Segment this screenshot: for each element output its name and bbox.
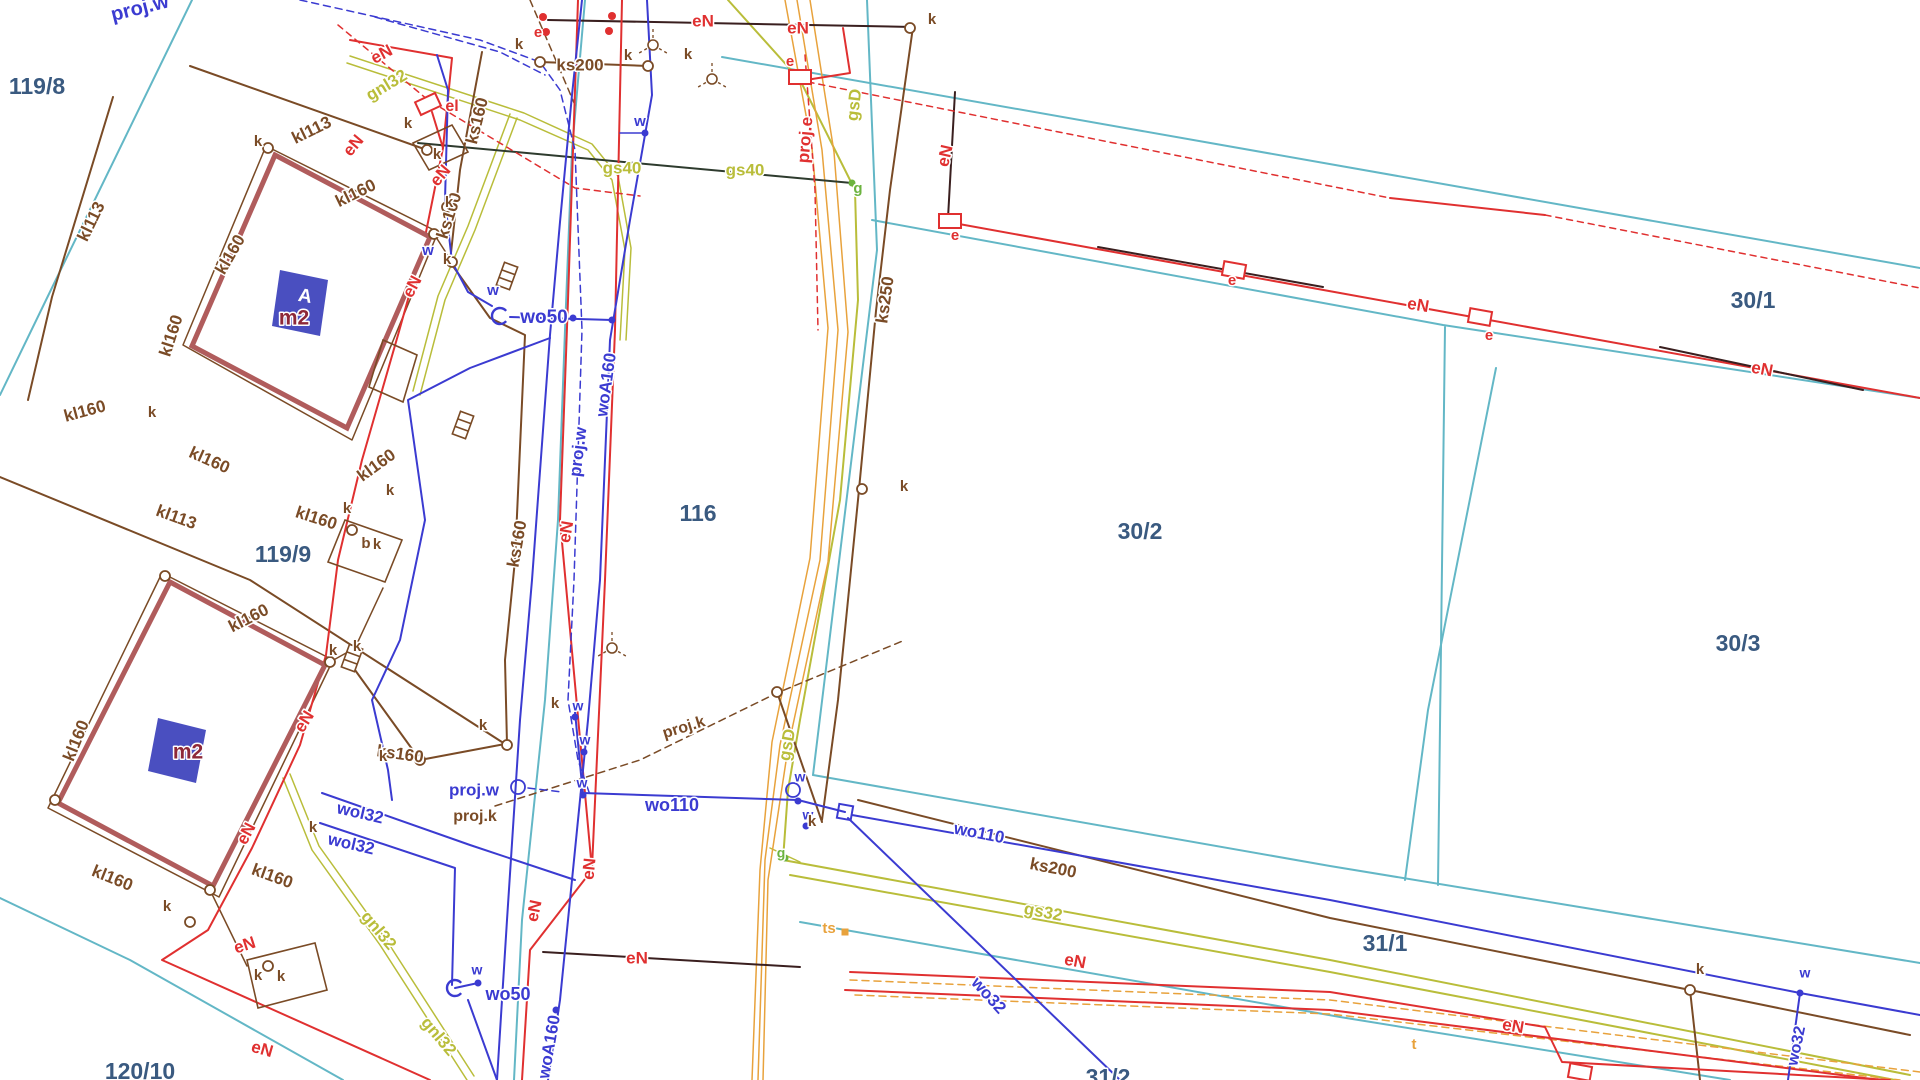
- water-node-icon: [1797, 990, 1804, 997]
- map-label-k: k: [443, 251, 452, 268]
- map-label-g: g: [777, 845, 786, 861]
- map-canvas: 119/8119/9120/1011630/130/230/331/131/2p…: [0, 0, 1920, 1080]
- map-label-k: k: [163, 898, 172, 915]
- map-label-k: k: [254, 967, 263, 984]
- map-label-wol32: wol32: [334, 798, 385, 827]
- map-label-m2: m2: [279, 307, 309, 330]
- map-label-gnl32: gnl32: [363, 66, 411, 105]
- map-label-gnl32: gnl32: [417, 1013, 460, 1059]
- line-power-proj-e-dash2: [1545, 215, 1920, 288]
- map-label-proj-k: proj.k: [661, 713, 708, 742]
- map-label-k: k: [404, 115, 413, 132]
- map-label-en: eN: [1406, 294, 1431, 316]
- map-label-woa160: woA160: [534, 1014, 564, 1080]
- map-label-en: eN: [1501, 1015, 1526, 1037]
- sewer-point-icon: [50, 795, 60, 805]
- culvert-icon: [452, 411, 473, 438]
- water-point-icon: [511, 780, 525, 794]
- map-label-en: eN: [231, 933, 258, 958]
- map-label-proj-w: proj.w: [566, 425, 591, 478]
- map-label-k: k: [808, 813, 817, 830]
- water-node-icon: [642, 130, 649, 137]
- map-label-w: w: [1799, 965, 1811, 981]
- map-label-k: k: [309, 819, 318, 836]
- survey-point-icon: [639, 29, 667, 53]
- map-label-wo50: wo50: [519, 307, 568, 328]
- water-node-icon: [553, 1007, 560, 1014]
- map-label-k: k: [479, 717, 488, 734]
- line-water-wo32-diag: [848, 818, 1120, 1080]
- water-node-icon: [581, 749, 588, 756]
- power-cabinet-icon: [939, 214, 961, 228]
- map-label-k: k: [684, 46, 693, 63]
- map-label-en: eN: [933, 143, 956, 168]
- map-label-k: k: [515, 36, 524, 53]
- map-label-proj-e: proj.e: [794, 116, 817, 164]
- map-label-proj-w: proj.w: [449, 780, 500, 799]
- sewer-point-icon: [772, 687, 782, 697]
- water-node-icon: [795, 798, 802, 805]
- sewer-point-icon: [185, 917, 195, 927]
- map-label-w: w: [633, 113, 646, 130]
- map-label-gs40: gs40: [603, 158, 642, 177]
- map-label-31-1: 31/1: [1363, 930, 1408, 956]
- map-label-31-2: 31/2: [1086, 1064, 1131, 1080]
- map-label-30-3: 30/3: [1716, 630, 1761, 656]
- map-label-gsd: gsD: [775, 727, 799, 762]
- water-node-icon: [609, 317, 616, 324]
- map-label-ks200: ks200: [556, 55, 603, 74]
- line-boundary-30-2-30-3: [1405, 368, 1496, 880]
- line-water-wo50-2-stub: [455, 983, 478, 988]
- map-label-k: k: [928, 11, 937, 28]
- map-label-w: w: [576, 775, 588, 791]
- map-label-proj-w: proj.w: [109, 0, 172, 26]
- map-label-t: t: [1412, 1036, 1417, 1053]
- map-label-wo32: wo32: [1784, 1025, 1809, 1069]
- line-power-proj-e-dash1: [808, 82, 1390, 198]
- sewer-point-icon: [502, 740, 512, 750]
- sewer-point-icon: [263, 961, 273, 971]
- map-label-k: k: [343, 500, 352, 517]
- map-label-k: k: [379, 748, 388, 765]
- map-label-k: k: [353, 638, 362, 655]
- map-label-ks200: ks200: [1028, 854, 1078, 882]
- map-label-k: k: [624, 47, 633, 64]
- map-label-w: w: [572, 698, 584, 714]
- line-sewer-ks250: [822, 27, 913, 820]
- map-label-gs40: gs40: [726, 160, 765, 179]
- map-label-e: e: [1485, 327, 1493, 344]
- map-label-k: k: [148, 404, 157, 421]
- map-label-en: eN: [1063, 950, 1088, 973]
- sewer-point-icon: [347, 525, 357, 535]
- sewer-point-icon: [160, 571, 170, 581]
- sewer-point-icon: [422, 145, 432, 155]
- map-label-kl160: kl160: [186, 443, 233, 478]
- map-label-k: k: [329, 642, 338, 659]
- map-label-en: eN: [578, 857, 599, 881]
- map-label-kl160: kl160: [354, 445, 400, 485]
- map-label-kl160: kl160: [155, 313, 186, 359]
- culvert-icon: [496, 262, 517, 289]
- map-label-wol32: wol32: [325, 829, 376, 858]
- map-label-119-8: 119/8: [9, 73, 65, 99]
- power-cabinet-icon: [1568, 1063, 1592, 1080]
- map-label-b: b: [361, 535, 370, 552]
- line-sewer-k-drop-se: [1690, 990, 1700, 1080]
- sewer-point-icon: [857, 484, 867, 494]
- map-label-e: e: [534, 24, 542, 41]
- map-label-w: w: [794, 769, 806, 785]
- map-symbols: [50, 12, 1804, 1080]
- map-label-k: k: [433, 146, 442, 163]
- power-node-icon: [608, 12, 616, 20]
- line-telecom-road-1: [850, 980, 1920, 1072]
- line-sewer-ks200-road: [858, 800, 1910, 1035]
- map-label-m2: m2: [173, 741, 203, 764]
- sewer-point-icon: [263, 143, 273, 153]
- map-label-kl160: kl160: [293, 502, 339, 533]
- line-water-wo50-2-out: [468, 1000, 497, 1080]
- map-label-kl113: kl113: [289, 112, 335, 147]
- map-label-en: eN: [626, 948, 648, 967]
- line-parcel-boundary-sw: [0, 898, 343, 1080]
- water-node-icon: [570, 315, 577, 322]
- power-node-icon: [539, 13, 547, 21]
- map-label-ks160: ks160: [504, 519, 531, 569]
- map-label-en: eN: [787, 18, 809, 37]
- map-label-kl113: kl113: [154, 501, 200, 533]
- map-label-kl160: kl160: [89, 861, 136, 895]
- survey-point-icon: [698, 63, 726, 87]
- map-label-gsd: gsD: [843, 88, 866, 122]
- line-gas-gs32-road-a: [783, 860, 1910, 1075]
- map-label-en: eN: [692, 11, 714, 30]
- line-power-eN-top-dark: [548, 20, 913, 27]
- map-label-120-10: 120/10: [105, 1058, 175, 1080]
- map-label-e: e: [951, 227, 959, 244]
- map-label-woa160: woA160: [592, 352, 620, 419]
- map-label-k: k: [373, 536, 382, 553]
- map-label-ts: ts: [822, 920, 835, 937]
- line-sewer-proj-k-top: [530, 0, 575, 105]
- sewer-point-icon: [535, 57, 545, 67]
- map-label-ks250: ks250: [872, 275, 897, 324]
- map-label-g: g: [853, 180, 862, 197]
- water-node-icon: [572, 714, 579, 721]
- line-road-south-boundary: [800, 922, 1730, 1080]
- line-water-proj-w-link: [528, 788, 562, 792]
- map-label-e: e: [786, 53, 794, 70]
- sewer-point-icon: [643, 61, 653, 71]
- line-parcel-30-1-north: [722, 57, 1920, 268]
- map-label-wo110: wo110: [951, 819, 1006, 848]
- telecom-node-icon: [842, 929, 849, 936]
- map-label-w: w: [421, 242, 434, 259]
- map-label-e: e: [1228, 272, 1236, 289]
- map-label-w: w: [486, 282, 499, 299]
- map-label-proj-k: proj.k: [453, 808, 497, 825]
- map-label-gs32: gs32: [1022, 899, 1064, 925]
- water-node-icon: [475, 980, 482, 987]
- water-node-icon: [580, 792, 587, 799]
- power-cabinet-icon: [789, 70, 811, 84]
- sewer-point-icon: [905, 23, 915, 33]
- map-label-k: k: [551, 695, 560, 712]
- map-label-30-2: 30/2: [1118, 518, 1163, 544]
- map-label-k: k: [445, 194, 454, 211]
- map-label-en: eN: [1750, 358, 1775, 381]
- map-label-en: eN: [339, 131, 368, 160]
- map-label-w: w: [471, 962, 483, 978]
- map-viewport[interactable]: 119/8119/9120/1011630/130/230/331/131/2p…: [0, 0, 1920, 1080]
- map-label-wo50: wo50: [484, 984, 530, 1004]
- map-label-kl113: kl113: [73, 199, 108, 245]
- map-label-k: k: [277, 968, 286, 985]
- line-power-proj-e-solid: [1390, 198, 1545, 215]
- map-label-en: eN: [522, 898, 545, 923]
- map-label-30-1: 30/1: [1731, 287, 1776, 313]
- sewer-point-icon: [1685, 985, 1695, 995]
- map-label-kl160: kl160: [62, 396, 108, 425]
- power-cabinet-icon: [415, 93, 441, 115]
- map-label-119-9: 119/9: [255, 541, 311, 567]
- map-label-w: w: [579, 732, 591, 748]
- map-label-en: eN: [426, 161, 455, 190]
- map-label-gnl32: gnl32: [357, 907, 400, 953]
- line-power-eN-road-a: [850, 972, 1890, 1080]
- map-label-k: k: [1696, 961, 1705, 978]
- map-label-k: k: [900, 478, 909, 495]
- power-node-icon: [605, 27, 613, 35]
- map-label-el: el: [445, 98, 458, 115]
- line-telecom-road-2: [855, 995, 1900, 1080]
- map-label-116: 116: [679, 500, 716, 526]
- map-label-k: k: [386, 482, 395, 499]
- power-node-icon: [542, 28, 550, 36]
- power-cabinet-icon: [1468, 308, 1492, 326]
- line-boundary-30-1-30-2: [1438, 327, 1445, 885]
- map-label-k: k: [254, 133, 263, 150]
- map-label-kl160: kl160: [249, 860, 295, 892]
- map-label-wo110: wo110: [644, 795, 699, 815]
- map-label-en: eN: [555, 519, 577, 544]
- sewer-point-icon: [205, 885, 215, 895]
